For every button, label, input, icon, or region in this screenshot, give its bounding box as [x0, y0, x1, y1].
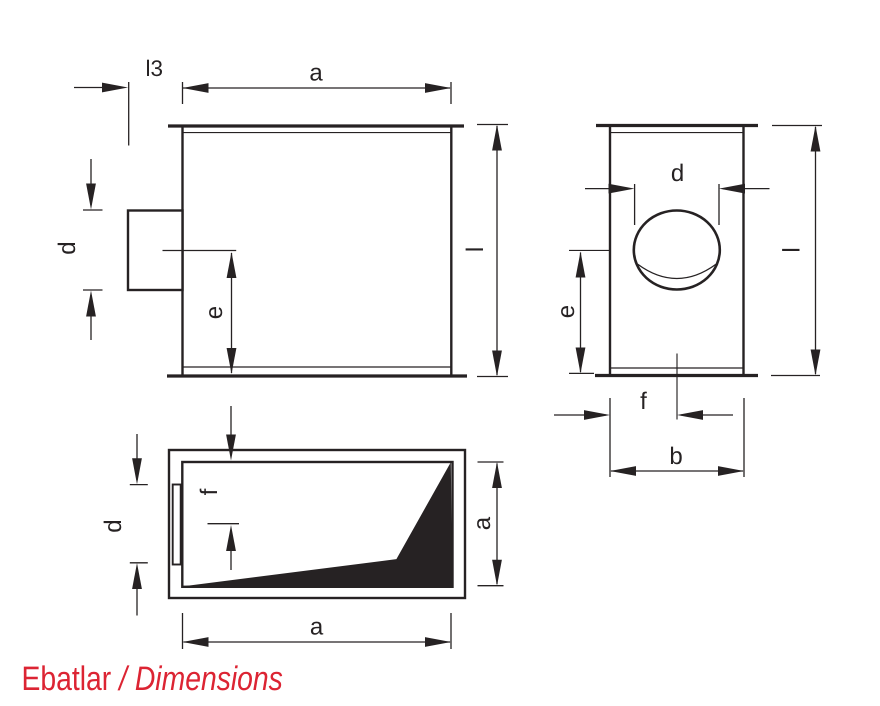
svg-text:a: a	[469, 516, 496, 530]
svg-text:e: e	[553, 305, 580, 318]
svg-text:d: d	[671, 160, 684, 187]
svg-text:d: d	[100, 519, 127, 532]
svg-text:l: l	[462, 247, 489, 252]
svg-text:b: b	[669, 443, 682, 470]
svg-text:l: l	[779, 247, 806, 252]
svg-text:a: a	[310, 614, 324, 641]
svg-text:l3: l3	[146, 56, 164, 81]
svg-text:a: a	[309, 60, 323, 87]
svg-text:f: f	[640, 388, 647, 415]
svg-text:d: d	[54, 241, 81, 254]
svg-text:e: e	[201, 306, 228, 319]
svg-text:f: f	[196, 488, 223, 495]
svg-text:Ebatlar / Dimensions: Ebatlar / Dimensions	[22, 660, 283, 698]
